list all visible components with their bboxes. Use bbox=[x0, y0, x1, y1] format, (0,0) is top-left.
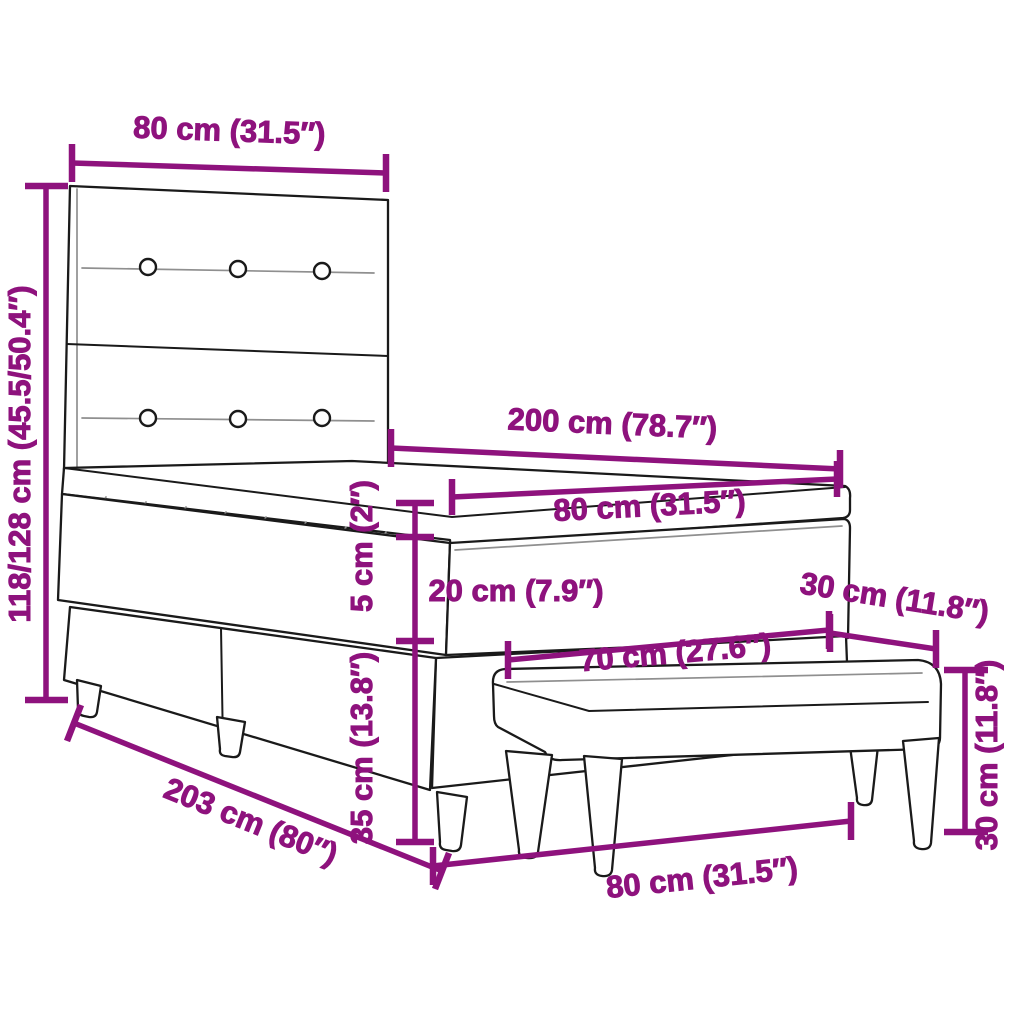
bed-leg-front-right bbox=[437, 792, 467, 851]
bench-leg-rear-left bbox=[584, 756, 622, 876]
bench-cushion bbox=[493, 660, 941, 760]
dim-base-height-label: 35 cm (13.8″) bbox=[344, 652, 379, 844]
bench-leg-front-right bbox=[903, 738, 939, 849]
dim-bench-height: 30 cm (11.8″) bbox=[944, 660, 1004, 851]
dim-headboard-width-label: 80 cm (31.5″) bbox=[133, 110, 326, 152]
button-icon bbox=[140, 259, 156, 275]
button-icon bbox=[230, 261, 246, 277]
bench-leg-front-left bbox=[506, 751, 552, 858]
dim-total-height: 118/128 cm (45.5/50.4″) bbox=[2, 186, 68, 700]
bed-leg-front-middle bbox=[217, 717, 245, 757]
dim-bench-height-label: 30 cm (11.8″) bbox=[969, 660, 1004, 851]
button-icon bbox=[314, 410, 330, 426]
button-icon bbox=[230, 411, 246, 427]
dim-headboard-width: 80 cm (31.5″) bbox=[72, 110, 386, 192]
headboard-panel bbox=[64, 186, 388, 470]
dim-total-height-label: 118/128 cm (45.5/50.4″) bbox=[2, 285, 37, 622]
dim-bench-span-label: 80 cm (31.5″) bbox=[604, 850, 799, 905]
button-icon bbox=[314, 263, 330, 279]
dim-topper-height-label: 5 cm (2″) bbox=[344, 480, 379, 612]
dim-bench-span: 80 cm (31.5″) bbox=[433, 802, 851, 905]
button-icon bbox=[140, 410, 156, 426]
dim-mattress-height-label: 20 cm (7.9″) bbox=[428, 573, 603, 608]
headboard bbox=[64, 186, 388, 470]
dim-bed-length-label: 200 cm (78.7″) bbox=[507, 401, 718, 445]
bed-dimension-diagram: 80 cm (31.5″) 118/128 cm (45.5/50.4″) 20… bbox=[0, 0, 1024, 1024]
